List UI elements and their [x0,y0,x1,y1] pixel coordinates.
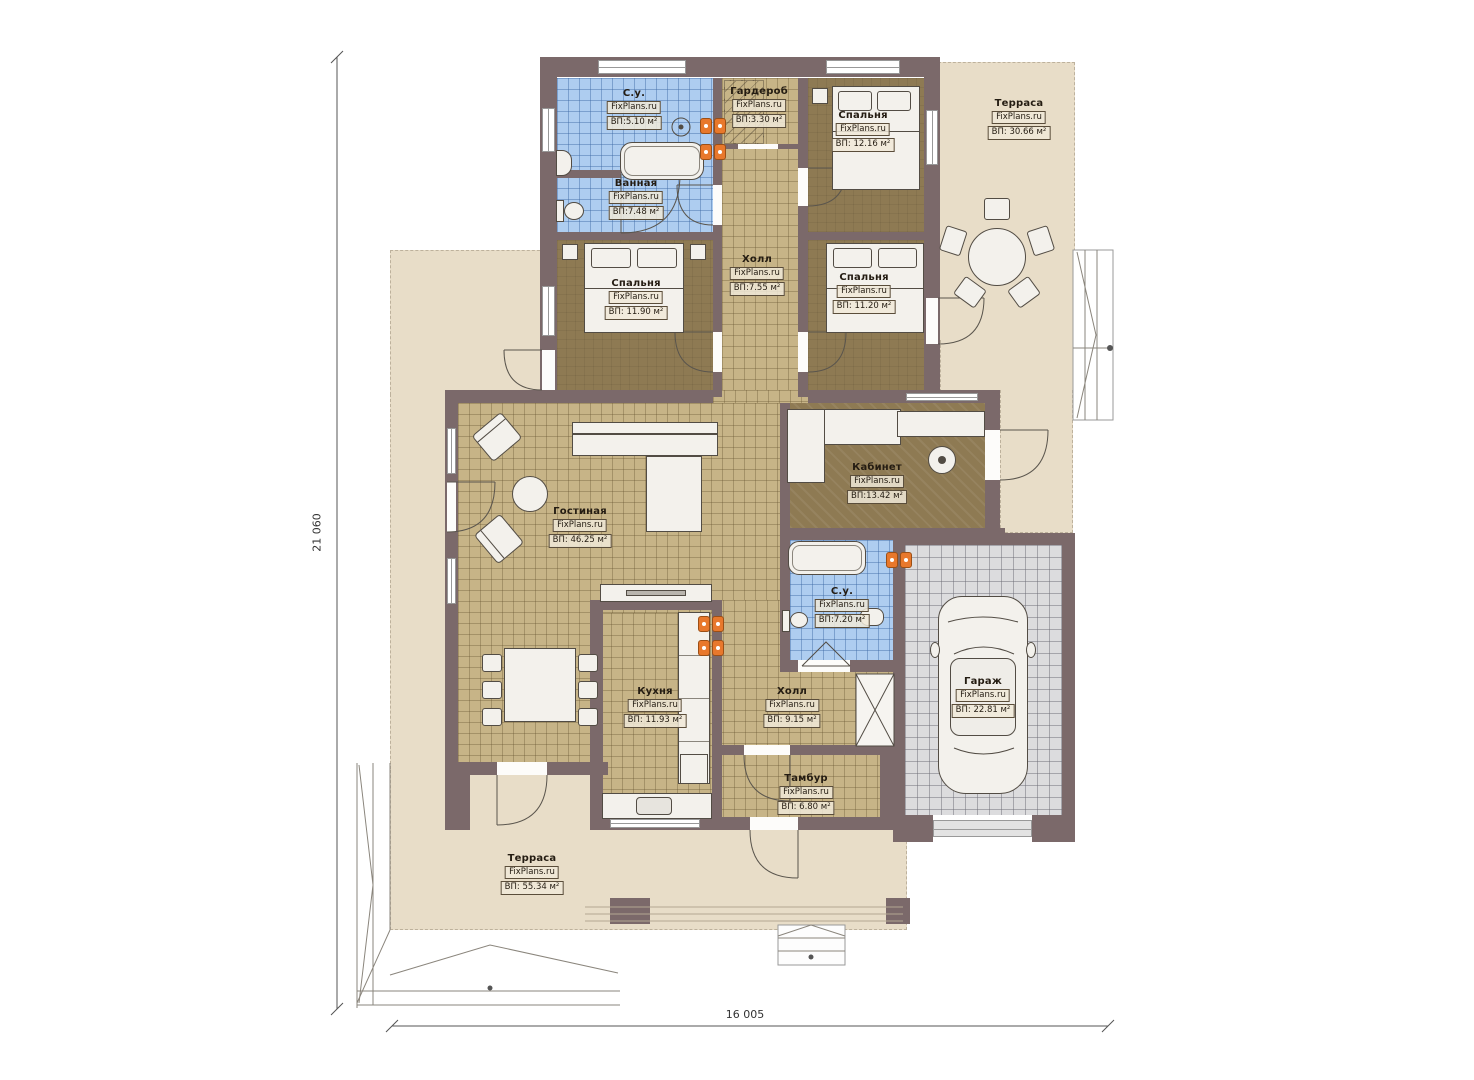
wall [893,533,1075,545]
watermark: FixPlans.ru [609,191,663,204]
toilet [790,612,808,628]
car-mirror [1026,642,1036,658]
toilet [556,200,564,222]
window [610,819,700,828]
window [826,60,900,74]
watermark: FixPlans.ru [505,866,559,879]
room-label-vannaya: Ванная FixPlans.ru ВП:7.48 м² [609,178,664,220]
chair [482,654,502,672]
room-name: С.у. [607,88,662,99]
window [926,110,938,165]
room-area: ВП: 9.15 м² [763,714,820,727]
watermark: FixPlans.ru [730,267,784,280]
door-opening [985,430,1000,480]
room-area: ВП:7.55 м² [730,282,785,295]
terrace-left-floor [390,250,545,395]
office-sofa [787,409,825,483]
room-name: Спальня [605,278,668,289]
door-opening [798,332,808,372]
wall [1062,533,1075,842]
stove [680,754,708,784]
wall [880,745,905,817]
watermark: FixPlans.ru [628,699,682,712]
room-area: ВП:3.30 м² [732,114,787,127]
nightstand [690,244,706,260]
heating-vent [700,144,726,160]
porch-floor [1000,390,1073,533]
floor-plan-canvas: С.у. FixPlans.ru ВП:5.10 м² Ванная FixPl… [0,0,1474,1080]
window [542,108,555,152]
bathtub [620,142,704,180]
sofa [572,434,718,456]
window [447,428,456,474]
room-name: С.у. [815,586,870,597]
heating-vent [698,640,724,656]
chair [578,654,598,672]
terrace-left-floor [390,394,447,774]
room-label-terrace-right: Терраса FixPlans.ru ВП: 30.66 м² [988,98,1051,140]
tv [626,590,686,596]
office-chair [928,446,956,474]
wall [808,232,926,240]
room-label-bedroom-e: Спальня FixPlans.ru ВП: 11.20 м² [833,272,896,314]
room-name: Кабинет [847,462,907,473]
room-label-bedroom-ne: Спальня FixPlans.ru ВП: 12.16 м² [832,110,895,152]
round-table [968,228,1026,286]
floor-corridor-junction [713,390,808,403]
room-area: ВП: 55.34 м² [501,881,564,894]
watermark: FixPlans.ru [836,123,890,136]
wall [557,232,713,240]
room-name: Терраса [501,853,564,864]
room-name: Холл [763,686,820,697]
door-opening [744,745,790,755]
terrace-right-floor [940,340,1075,392]
room-area: ВП: 46.25 м² [549,534,612,547]
wall [712,600,722,817]
door-opening [926,298,938,344]
room-label-tambur: Тамбур FixPlans.ru ВП: 6.80 м² [777,773,834,815]
watermark: FixPlans.ru [815,599,869,612]
room-name: Гараж [952,676,1015,687]
room-name: Терраса [988,98,1051,109]
door-opening [750,817,798,830]
sink [556,150,572,176]
door-opening [798,660,850,672]
dimension-width: 16 005 [700,1008,790,1021]
watermark: FixPlans.ru [609,291,663,304]
door-opening [447,482,456,532]
desk [897,411,985,437]
door-opening [542,350,555,390]
chair [578,708,598,726]
room-label-su-bottom: С.у. FixPlans.ru ВП:7.20 м² [815,586,870,628]
chair [578,681,598,699]
room-area: ВП: 11.93 м² [624,714,687,727]
sofa-chaise [646,456,702,532]
watermark: FixPlans.ru [956,689,1010,702]
room-name: Спальня [832,110,895,121]
room-name: Спальня [833,272,896,283]
room-name: Гостиная [549,506,612,517]
room-area: ВП:5.10 м² [607,116,662,129]
room-label-garderob: Гардероб FixPlans.ru ВП:3.30 м² [730,86,788,128]
room-area: ВП: 6.80 м² [777,801,834,814]
room-label-hall-bottom: Холл FixPlans.ru ВП: 9.15 м² [763,686,820,728]
toilet [782,610,790,632]
garage-door [933,820,1032,837]
chair [984,198,1010,220]
nightstand [562,244,578,260]
door-opening [713,332,722,372]
wall [445,390,713,403]
room-label-bedroom-w: Спальня FixPlans.ru ВП: 11.90 м² [605,278,668,320]
kitchen-sink [636,797,672,815]
chair [482,681,502,699]
window [598,60,686,74]
room-name: Тамбур [777,773,834,784]
dining-table [504,648,576,722]
room-label-kabinet: Кабинет FixPlans.ru ВП:13.42 м² [847,462,907,504]
room-label-kitchen: Кухня FixPlans.ru ВП: 11.93 м² [624,686,687,728]
room-label-hall-top: Холл FixPlans.ru ВП:7.55 м² [730,254,785,296]
window [906,393,978,401]
wall [712,745,880,755]
door-opening [713,185,722,225]
room-name: Гардероб [730,86,788,97]
room-label-garage: Гараж FixPlans.ru ВП: 22.81 м² [952,676,1015,718]
nightstand [812,88,828,104]
wall [445,775,470,830]
watermark: FixPlans.ru [992,111,1046,124]
chair [482,708,502,726]
wall [1032,815,1075,842]
watermark: FixPlans.ru [850,475,904,488]
room-area: ВП: 12.16 м² [832,138,895,151]
room-label-livingroom: Гостиная FixPlans.ru ВП: 46.25 м² [549,506,612,548]
room-area: ВП:7.20 м² [815,614,870,627]
door-opening [497,762,547,775]
room-label-terrace-bottom: Терраса FixPlans.ru ВП: 55.34 м² [501,853,564,895]
heating-vent [700,118,726,134]
dimension-height: 21 060 [311,503,324,563]
toilet [564,202,584,220]
room-name: Ванная [609,178,664,189]
heating-vent [698,616,724,632]
door-opening [738,144,778,149]
watermark: FixPlans.ru [553,519,607,532]
room-name: Кухня [624,686,687,697]
car-mirror [930,642,940,658]
window [542,286,555,336]
bathtub [788,541,866,575]
room-label-su-top: С.у. FixPlans.ru ВП:5.10 м² [607,88,662,130]
terrace-post [886,898,910,924]
room-area: ВП: 22.81 м² [952,704,1015,717]
room-area: ВП: 30.66 м² [988,126,1051,139]
room-area: ВП:7.48 м² [609,206,664,219]
terrace-post [610,898,650,924]
sofa [572,422,718,434]
watermark: FixPlans.ru [779,786,833,799]
coffee-table [512,476,548,512]
door-opening [798,168,808,206]
room-area: ВП:13.42 м² [847,490,907,503]
watermark: FixPlans.ru [837,285,891,298]
room-area: ВП: 11.90 м² [605,306,668,319]
window [447,558,456,604]
room-name: Холл [730,254,785,265]
watermark: FixPlans.ru [607,101,661,114]
watermark: FixPlans.ru [732,99,786,112]
wall [924,57,940,397]
room-area: ВП: 11.20 м² [833,300,896,313]
heating-vent [886,552,912,568]
watermark: FixPlans.ru [765,699,819,712]
